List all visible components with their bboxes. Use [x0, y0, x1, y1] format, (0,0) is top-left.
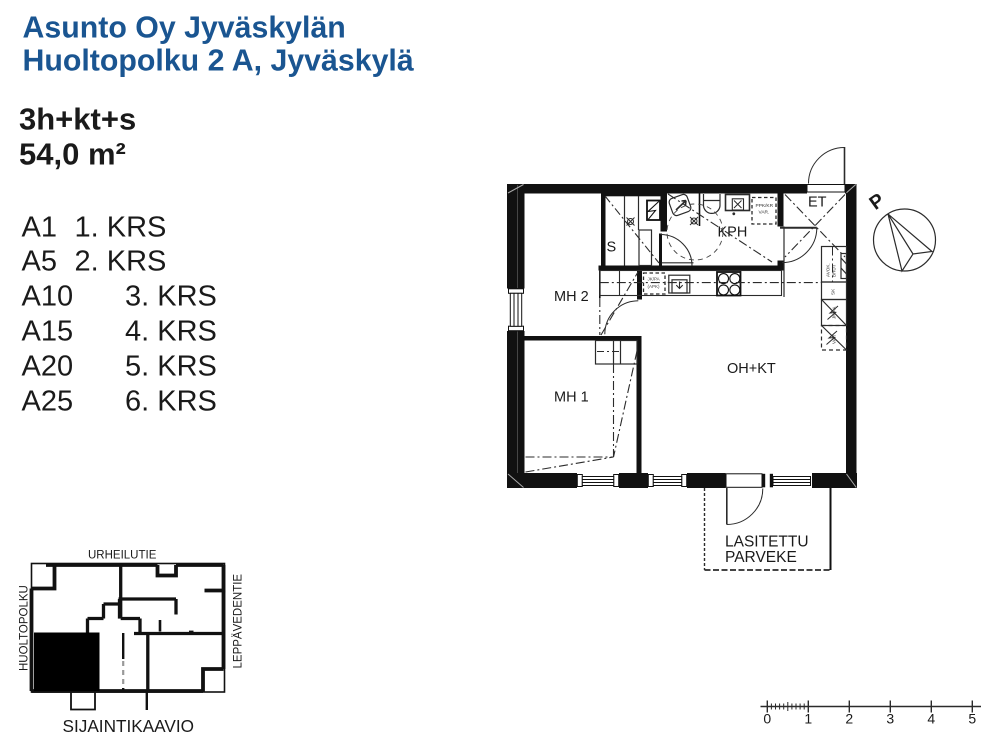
svg-text:S: S: [607, 240, 617, 256]
svg-text:PARVEKE: PARVEKE: [725, 549, 797, 566]
svg-text:2: 2: [845, 711, 853, 727]
svg-text:HUOLTOPOLKU: HUOLTOPOLKU: [19, 585, 31, 671]
svg-text:0: 0: [763, 711, 771, 727]
svg-text:BRUT: BRUT: [832, 264, 837, 277]
svg-text:1: 1: [804, 711, 812, 727]
svg-text:MH 2: MH 2: [554, 289, 589, 305]
svg-text:A20: A20: [22, 350, 74, 382]
svg-text:LASITETTU: LASITETTU: [725, 534, 809, 551]
svg-text:SK: SK: [831, 288, 836, 295]
svg-text:54,0 m²: 54,0 m²: [19, 137, 126, 172]
svg-text:A25: A25: [22, 385, 74, 417]
svg-text:5: 5: [968, 711, 976, 727]
svg-text:JK/PA: JK/PA: [648, 277, 660, 282]
svg-text:A1: A1: [22, 212, 57, 244]
svg-text:URHEILUTIE: URHEILUTIE: [88, 550, 157, 562]
svg-text:A5: A5: [22, 245, 57, 277]
svg-text:(APK): (APK): [648, 284, 661, 289]
svg-text:A15: A15: [22, 316, 74, 348]
svg-text:4. KRS: 4. KRS: [125, 316, 217, 348]
svg-text:1. KRS: 1. KRS: [75, 212, 167, 244]
svg-text:5. KRS: 5. KRS: [125, 350, 217, 382]
svg-text:3. KRS: 3. KRS: [125, 280, 217, 312]
svg-text:SIJAINTIKAAVIO: SIJAINTIKAAVIO: [63, 716, 194, 736]
svg-text:3h+kt+s: 3h+kt+s: [19, 102, 136, 137]
svg-text:3: 3: [886, 711, 894, 727]
svg-text:MH 1: MH 1: [554, 390, 589, 406]
svg-text:Asunto Oy Jyväskylän: Asunto Oy Jyväskylän: [23, 12, 346, 45]
svg-text:KPH: KPH: [718, 225, 748, 241]
svg-text:4: 4: [927, 711, 935, 727]
svg-text:AVOK.: AVOK.: [826, 263, 831, 277]
svg-text:Huoltopolku 2 A, Jyväskylä: Huoltopolku 2 A, Jyväskylä: [23, 45, 414, 78]
svg-text:6. KRS: 6. KRS: [125, 385, 217, 417]
svg-text:A10: A10: [22, 280, 74, 312]
svg-text:PPK/KR: PPK/KR: [756, 203, 774, 209]
svg-text:ET: ET: [808, 195, 827, 211]
svg-text:LEPPÄVEDENTIE: LEPPÄVEDENTIE: [233, 574, 245, 669]
svg-text:2. KRS: 2. KRS: [75, 245, 167, 277]
svg-text:VAR.: VAR.: [759, 210, 770, 216]
svg-text:OH+KT: OH+KT: [727, 361, 776, 377]
